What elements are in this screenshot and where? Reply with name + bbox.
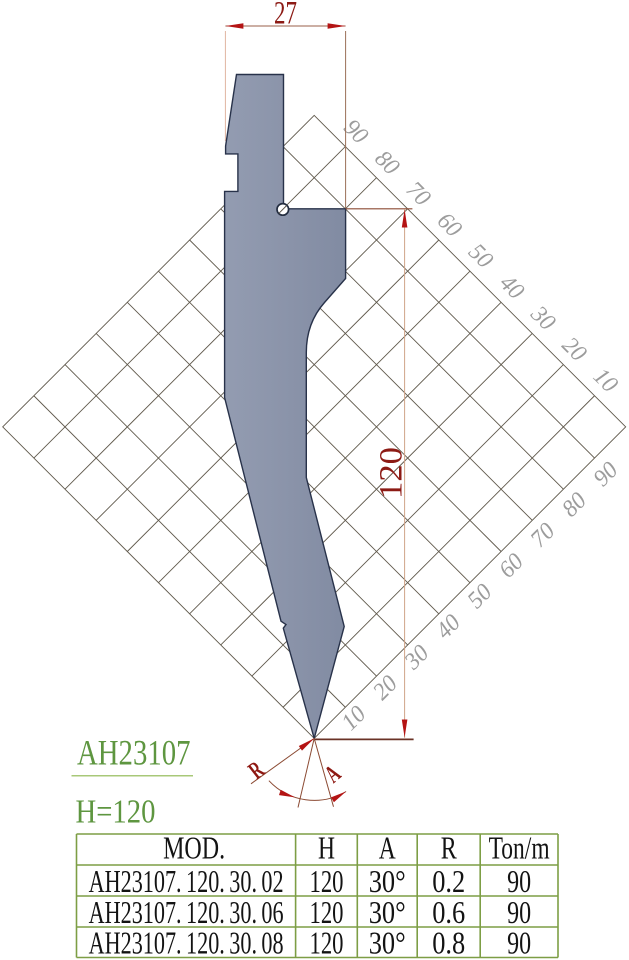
svg-text:AH23107. 120. 30. 08: AH23107. 120. 30. 08 xyxy=(89,924,284,960)
svg-text:0.8: 0.8 xyxy=(432,924,465,960)
svg-text:MOD.: MOD. xyxy=(163,830,225,866)
svg-text:120: 120 xyxy=(374,447,410,499)
svg-text:AH23107: AH23107 xyxy=(77,733,191,773)
svg-text:R: R xyxy=(441,830,457,866)
svg-text:27: 27 xyxy=(274,0,297,32)
svg-text:90: 90 xyxy=(507,924,531,960)
svg-text:H: H xyxy=(318,830,335,866)
svg-text:120: 120 xyxy=(310,924,344,960)
svg-text:30°: 30° xyxy=(369,924,406,960)
svg-text:Ton/m: Ton/m xyxy=(489,830,550,866)
svg-text:A: A xyxy=(379,830,396,866)
svg-text:H=120: H=120 xyxy=(76,794,156,831)
